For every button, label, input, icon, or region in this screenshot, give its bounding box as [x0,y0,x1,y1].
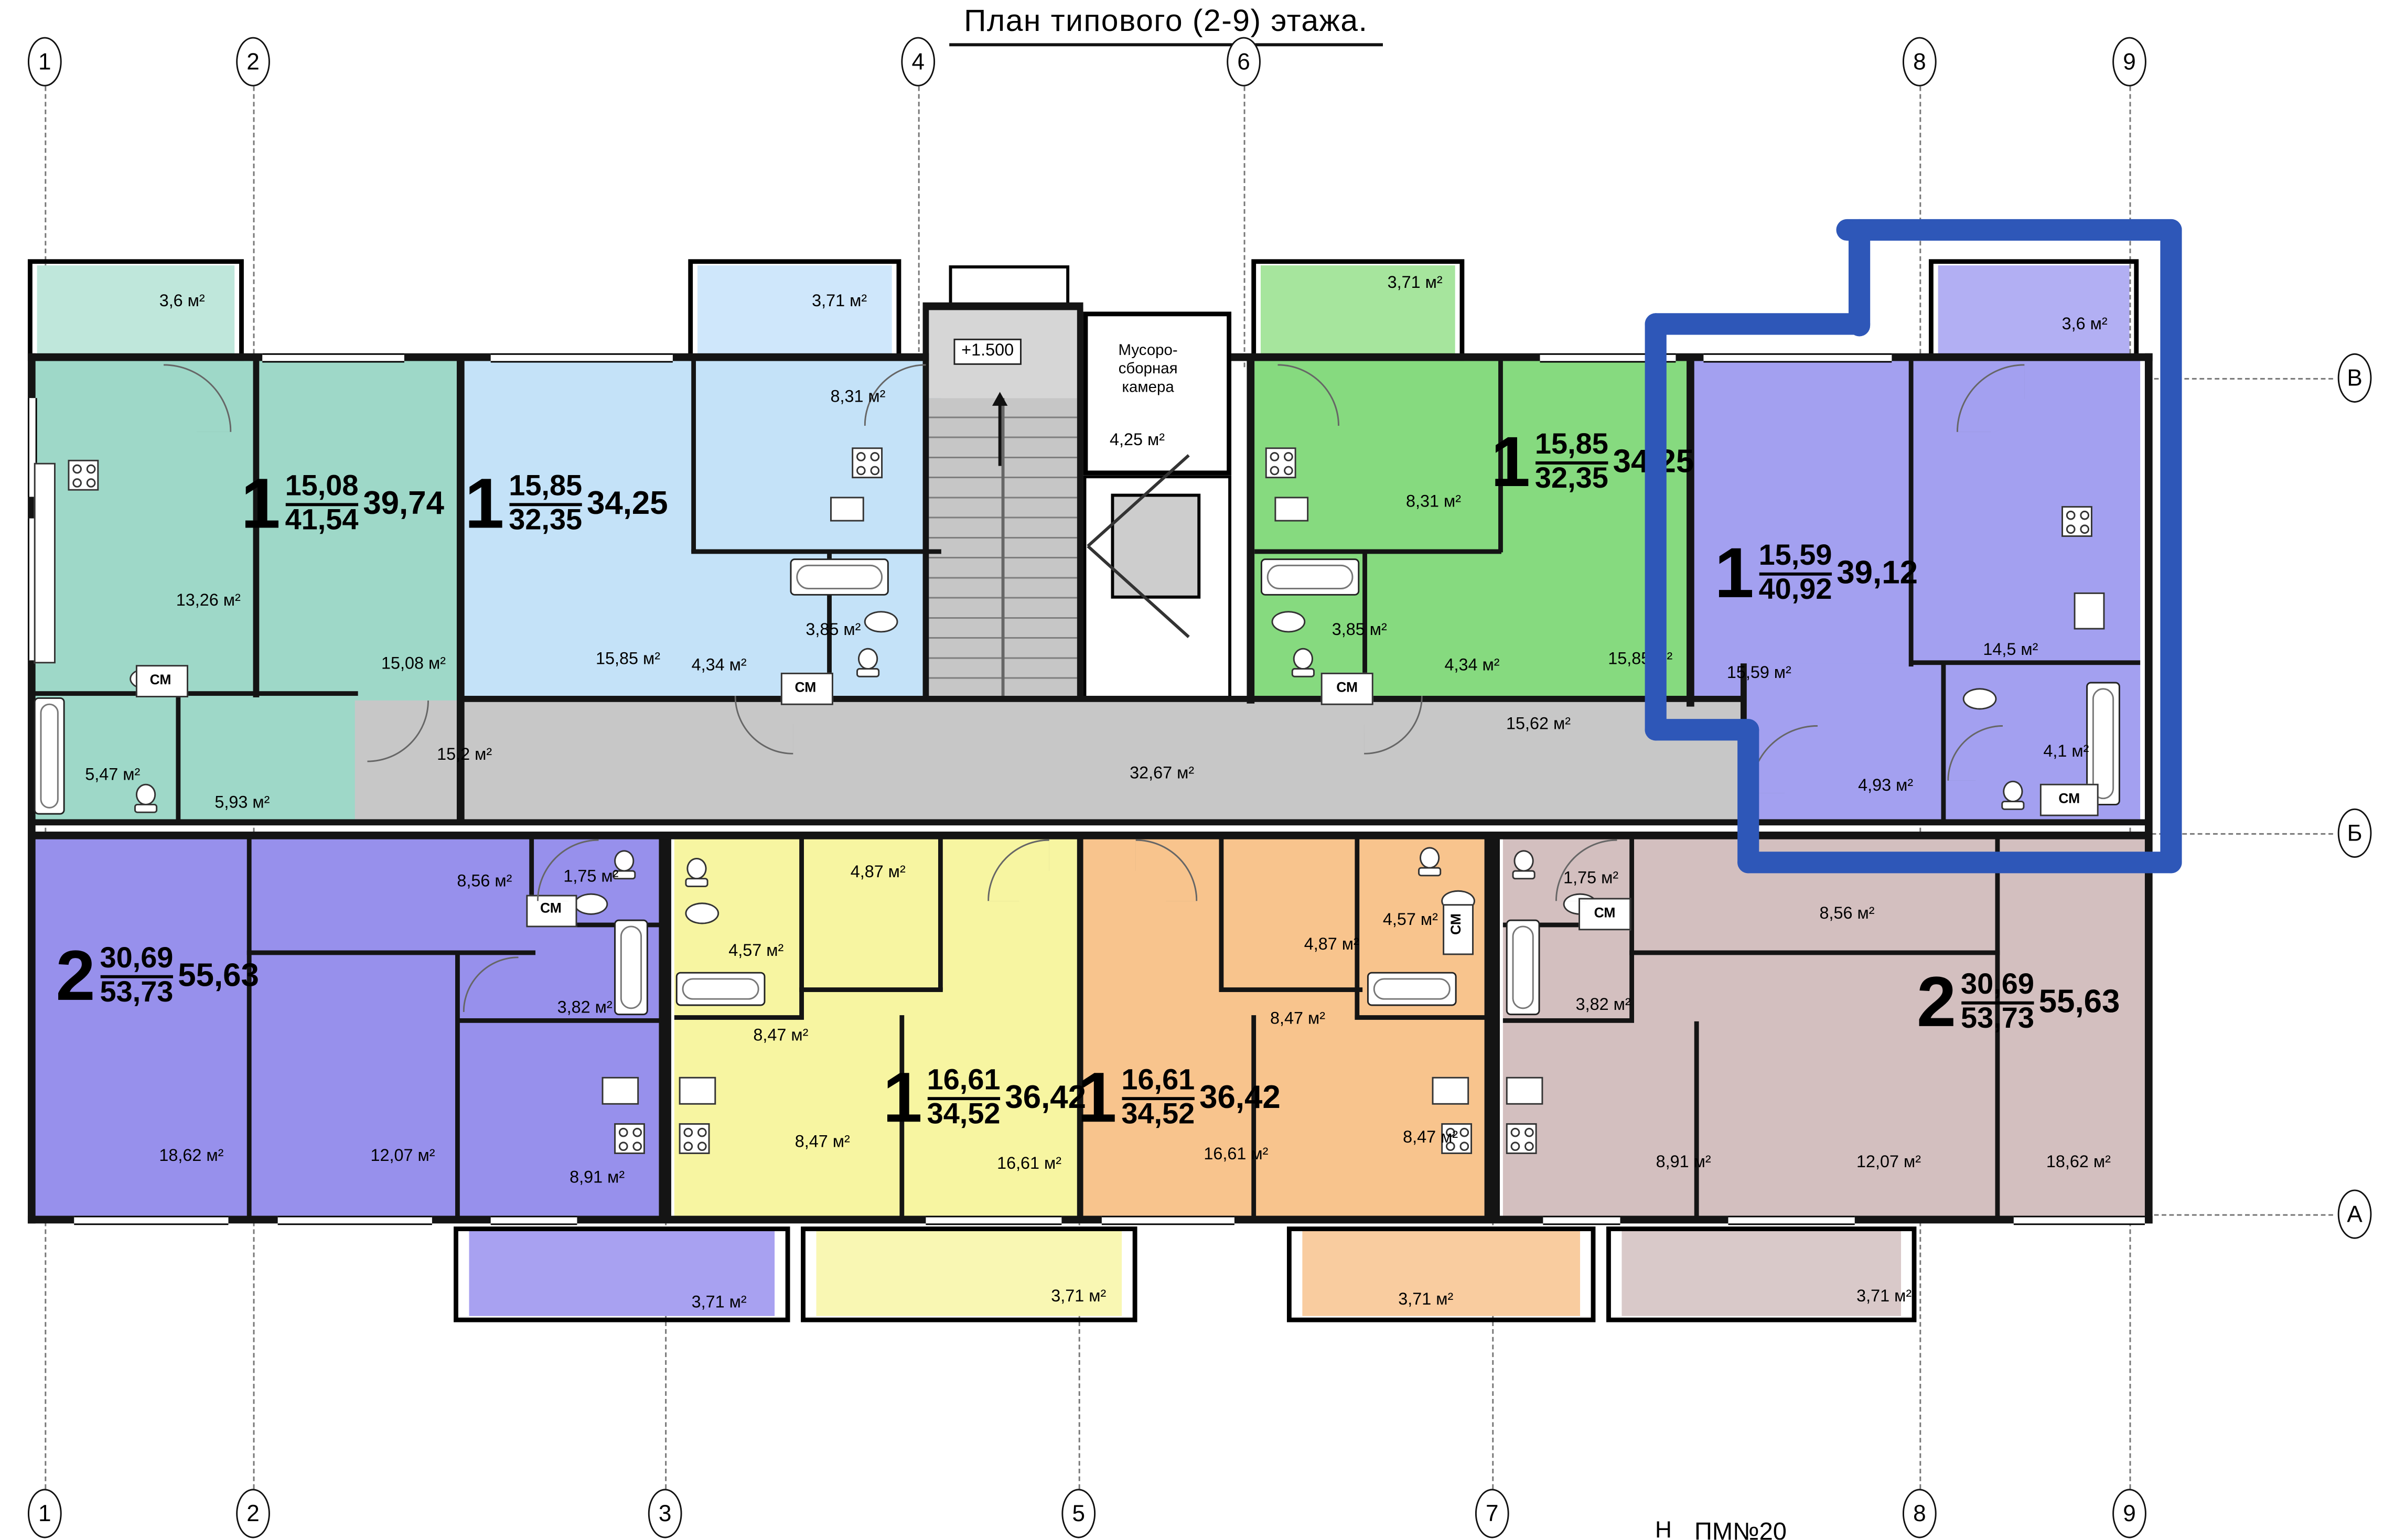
elevator-shaft [1111,494,1201,599]
stove-icon [1265,447,1296,478]
room-label: 14,5 м² [1983,643,2038,660]
axis-circle-top-4: 4 [901,37,935,87]
room-label: сборная [1119,362,1178,378]
highlight-outline-bar [2160,219,2182,874]
bathtub-icon [1506,920,1540,1015]
stove-burner [2066,511,2076,520]
stove-burner [1524,1141,1534,1151]
room-label: СМ [1449,913,1463,935]
wall [176,694,180,824]
apartment-area-fraction: 15,0841,54 [285,472,359,537]
apartment-label-total: 55,63 [178,958,259,995]
wall [1077,308,1083,700]
apartment-label-bot: 53,73 [100,978,173,1009]
wall [1254,549,1501,554]
toilet-tank-icon [856,668,879,677]
room-label: 3,71 м² [1856,1289,1912,1306]
bathtub-icon [676,972,766,1006]
room-label: 16,61 м² [997,1156,1061,1173]
axis-circle-bottom-1: 1 [28,1489,62,1538]
toilet-bowl-icon [1293,648,1313,670]
room-label: 4,57 м² [728,943,783,960]
stair-arrow-head [992,392,1007,405]
wall [1694,1021,1699,1219]
stove-burner [72,465,82,474]
room-label: СМ [540,902,562,916]
wall [1355,838,1359,1018]
apartment-label-top: 15,59 [1759,542,1832,576]
room-label: 4,34 м² [1445,658,1500,675]
room-label: 3,82 м² [557,1000,613,1017]
axis-circle-top-9: 9 [2112,37,2146,87]
wall [1077,838,1083,1219]
apartment-label-top: 15,85 [509,472,582,507]
room-label: +1.500 [953,339,1021,365]
wall [1912,660,2140,665]
stove-burner [1284,466,1293,476]
toilet-bowl-icon [1420,847,1440,868]
window [1703,353,1892,363]
apartment-area-fraction: 30,6953,73 [100,944,173,1009]
room-label: 8,31 м² [1406,494,1461,511]
room-label: Мусоро- [1119,344,1178,359]
window [491,353,673,363]
room-label: 18,62 м² [159,1149,223,1166]
bathtub-basin [1267,565,1354,589]
apartment-area-fraction: 15,8532,35 [509,472,582,537]
axis-circle-bottom-3: 3 [648,1489,682,1538]
wall [691,361,696,553]
toilet-bowl-icon [1513,850,1533,871]
room-label: 4,87 м² [851,865,906,881]
stove-burner [697,1141,707,1151]
room-label: 5,93 м² [214,795,270,812]
stove-burner [1460,1141,1469,1151]
bathtub-icon [1367,972,1457,1006]
stove-burner [1511,1128,1520,1137]
room-label: 1,75 м² [563,869,618,886]
sink-icon [864,611,898,632]
apartment-label-bot: 53,73 [1961,1005,2034,1036]
apartment-label: 115,8532,3534,25 [465,472,668,537]
bottom-note: ПМ№20 [1694,1521,1787,1539]
stove-burner [1284,452,1293,461]
apartment-label-bot: 32,35 [509,506,582,537]
wall [2145,353,2153,1224]
room-label: СМ [794,681,816,695]
room-label: 12,07 м² [1856,1155,1921,1171]
room-label: 8,47 м² [753,1028,808,1045]
stove-burner [619,1128,628,1137]
room-label: СМ [2058,792,2080,806]
apartment-label-bot: 34,52 [927,1100,1001,1131]
room-label: 13,26 м² [176,593,241,610]
room-label: 1,75 м² [1563,871,1618,888]
bathtub-basin [1512,925,1534,1009]
wall [1687,361,1694,707]
bathtub-basin [2092,688,2114,799]
room-label: 32,67 м² [1130,766,1194,783]
axis-circle-top-2: 2 [236,37,270,87]
room-label: 8,91 м² [1656,1155,1711,1171]
axis-circle-top-8: 8 [1903,37,1937,87]
window [1102,1216,1234,1225]
room-label: 3,71 м² [1051,1289,1106,1306]
apartment-label: 116,6134,5236,42 [1077,1066,1281,1130]
bathtub-basin [796,565,883,589]
highlight-outline-bar [1645,313,1667,740]
apartment-label-bot: 32,35 [1535,465,1608,496]
room-label: 3,85 м² [1332,622,1387,639]
bathtub-icon [34,697,65,815]
yellow-balcony-box [801,1226,1137,1322]
room-label: СМ [1336,681,1358,695]
apartment-label-total: 36,42 [1199,1080,1281,1117]
room-label: 3,71 м² [812,294,867,311]
room-label: 15,85 м² [596,652,660,669]
stove-burner [72,478,82,488]
apartment-label: 115,0841,5439,74 [241,472,444,537]
micro-icon [679,1077,716,1105]
apartment-label: 115,5940,9239,12 [1714,542,1918,606]
highlight-outline-bar [1645,313,1871,335]
room-label: 8,47 м² [1403,1130,1458,1147]
room-label: 15,08 м² [381,656,446,673]
apartment-label-bot: 34,52 [1121,1100,1195,1131]
apartment-label-top: 15,85 [1535,430,1608,465]
room-label: 3,71 м² [1388,275,1443,292]
toilet-tank-icon [1418,867,1441,877]
toilet-bowl-icon [686,858,706,879]
highlight-outline-bar [1737,719,1759,873]
apartment-label-num: 2 [1917,973,1956,1033]
bathtub-icon [614,920,648,1015]
room-label: 3,6 м² [2062,317,2108,334]
stove-burner [1524,1128,1534,1137]
stair-divider [1002,398,1005,701]
toilet-tank-icon [134,804,157,813]
wall [31,832,2150,839]
stove-burner [1270,452,1280,461]
apartment-label: 230,6953,7355,63 [56,944,259,1009]
room-label: 8,56 м² [1820,907,1875,923]
apartment-label-top: 16,61 [927,1066,1001,1100]
stove-icon [614,1123,645,1154]
stove-icon [68,460,99,491]
stove-burner [2080,524,2089,534]
toilet-tank-icon [1292,668,1315,677]
apartment-label-total: 34,25 [587,486,668,523]
room-label: 3,71 м² [692,1295,747,1312]
mauve-balcony-box [1606,1226,1916,1322]
room-label: 4,34 м² [692,658,747,675]
bathtub-basin [620,925,642,1009]
stove-burner [697,1128,707,1137]
wall [460,696,1744,702]
room-label: 8,47 м² [795,1135,850,1151]
apartment-area-fraction: 15,5940,92 [1759,542,1832,606]
room-label: 16,61 м² [1204,1147,1268,1164]
apartment-label-num: 2 [56,946,95,1007]
wall [799,987,943,992]
wall [455,953,460,1219]
axis-circle-right-А: А [2338,1190,2372,1239]
axis-circle-bottom-5: 5 [1061,1489,1096,1538]
stair-arrow-stem [998,404,1002,466]
axis-circle-right-Б: Б [2338,809,2372,858]
wall [1355,1015,1487,1020]
wall [1909,361,1914,667]
room-label: камера [1122,381,1174,396]
sink-icon [685,902,719,924]
bathtub-icon [1261,558,1359,596]
room-label: 3,6 м² [159,294,205,311]
stove-burner [856,466,866,476]
window [2014,1216,2145,1225]
stove-burner [683,1141,693,1151]
room-label: 15,62 м² [1506,717,1571,734]
page-title: План типового (2-9) этажа. [949,5,1383,46]
stove-burner [871,466,880,476]
wall [28,353,929,361]
wall [1629,951,2000,955]
highlight-outline-bar [1737,852,2182,873]
window [74,1216,228,1225]
window [1728,1216,1854,1225]
apartment-label-bot: 41,54 [285,506,359,537]
micro-icon [1432,1077,1469,1105]
stove-burner [87,478,96,488]
micro-icon [1274,497,1308,521]
stove-burner [1511,1141,1520,1151]
wall [923,303,1083,310]
room-label: СМ [1594,907,1616,920]
highlight-outline-bar [1849,219,1870,337]
axis-circle-bottom-8: 8 [1903,1489,1937,1538]
wall [691,549,941,554]
window [1543,1216,1620,1225]
stove-icon [2061,506,2092,537]
apartment-area-fraction: 16,6134,52 [927,1066,1001,1130]
apartment-area-fraction: 16,6134,52 [1121,1066,1195,1130]
apartment-label-bot: 40,92 [1759,576,1832,607]
wall [1231,353,2153,361]
stove-burner [871,452,880,461]
axis-circle-right-В: В [2338,353,2372,403]
micro-icon [1506,1077,1543,1105]
apartment-label-total: 39,12 [1837,555,1918,593]
axis-circle-bottom-2: 2 [236,1489,270,1538]
apartment-label-top: 15,08 [285,472,359,507]
apartment-area-fraction: 30,6953,73 [1961,971,2034,1035]
apartment-label-top: 16,61 [1121,1066,1195,1100]
room-label: 4,57 м² [1383,912,1438,929]
stove-burner [632,1128,642,1137]
toilet-bowl-icon [136,784,156,805]
bathtub-basin [682,978,759,999]
room-label: 4,1 м² [2043,745,2089,761]
room-label: СМ [150,673,171,687]
apartment-label: 116,6134,5236,42 [883,1066,1086,1130]
stove-burner [619,1141,628,1151]
wall [1941,663,1946,824]
apartment-label-total: 36,42 [1005,1080,1086,1117]
bathtub-basin [40,704,59,809]
room-label: 4,25 м² [1110,433,1165,449]
axis-circle-bottom-9: 9 [2112,1489,2146,1538]
wall [1485,838,1500,1219]
wall [31,691,358,696]
axis-circle-top-1: 1 [28,37,62,87]
toilet-tank-icon [2001,801,2024,810]
wall [31,819,2150,825]
axis-line-А [2154,1214,2333,1216]
toilet-tank-icon [685,878,708,887]
apartment-label-total: 39,74 [363,486,444,523]
room-label: 15,2 м² [437,748,492,764]
room-label: 12,07 м² [370,1149,435,1166]
apartment-label-total: 55,63 [2039,984,2120,1021]
highlight-outline-bar [1836,219,2182,241]
wall [674,1015,804,1020]
axis-circle-bottom-7: 7 [1475,1489,1509,1538]
stove-burner [1460,1128,1469,1137]
window [491,1216,577,1225]
wall [1247,361,1254,704]
stove-burner [2066,524,2076,534]
wall [247,951,535,955]
bathtub-basin [1373,978,1451,999]
apartment-label-num: 1 [241,475,280,535]
room-label: 18,62 м² [2046,1155,2111,1171]
apartment-area-fraction: 15,8532,35 [1535,430,1608,495]
stove-icon [1506,1123,1537,1154]
window [262,353,404,363]
stove-burner [1270,466,1280,476]
wall [1219,987,1362,992]
toilet-tank-icon [1512,870,1535,880]
stove-burner [856,452,866,461]
room-label: 15,59 м² [1727,666,1791,683]
wall [247,838,252,1219]
wall [938,838,943,990]
stove-burner [683,1128,693,1137]
bathtub-icon [790,558,889,596]
room-label: 3,82 м² [1576,997,1631,1014]
apartment-label-num: 1 [1077,1068,1116,1128]
wall [659,838,671,1219]
bottom-note: Н [1655,1519,1672,1540]
room-label: 8,56 м² [457,874,512,891]
room-label: 4,87 м² [1304,938,1359,954]
stove-icon [679,1123,710,1154]
wall [1219,838,1223,990]
apartment-label-num: 1 [883,1068,922,1128]
stove-burner [87,465,96,474]
apartment-label-num: 1 [465,475,504,535]
room-label: 4,93 м² [1858,778,1913,795]
hl-balcony [1938,265,2130,355]
axis-line-4 [918,87,920,368]
room-label: 8,91 м² [570,1170,625,1187]
apartment-label-num: 1 [1714,544,1754,604]
axis-circle-top-6: 6 [1227,37,1261,87]
micro-icon [2074,593,2105,630]
wall [1503,1018,1634,1023]
room-label: 3,85 м² [806,622,861,639]
micro-icon [602,1077,639,1105]
window [926,1216,1061,1225]
counter-icon [34,463,56,664]
stove-icon [852,447,883,478]
apartment-label: 230,6953,7355,63 [1917,971,2120,1035]
room-label: 8,47 м² [1270,1011,1325,1028]
axis-line-6 [1244,87,1245,368]
toilet-bowl-icon [858,648,878,670]
floor-plan-stage: План типового (2-9) этажа. 3,6 м²13,26 м… [0,0,2384,1540]
sink-icon [1272,611,1306,632]
toilet-bowl-icon [2003,781,2023,802]
apartment-label-top: 30,69 [1961,971,2034,1005]
micro-icon [830,497,864,521]
room-label: 8,31 м² [830,390,885,406]
wall [455,1018,662,1023]
apartment-label-num: 1 [1491,433,1530,493]
sink-icon [1963,688,1997,709]
room-label: 5,47 м² [85,768,140,784]
stove-burner [2080,511,2089,520]
window [278,1216,432,1225]
room-label: 3,71 м² [1398,1292,1453,1309]
stove-burner [632,1141,642,1151]
apartment-label-top: 30,69 [100,944,173,978]
